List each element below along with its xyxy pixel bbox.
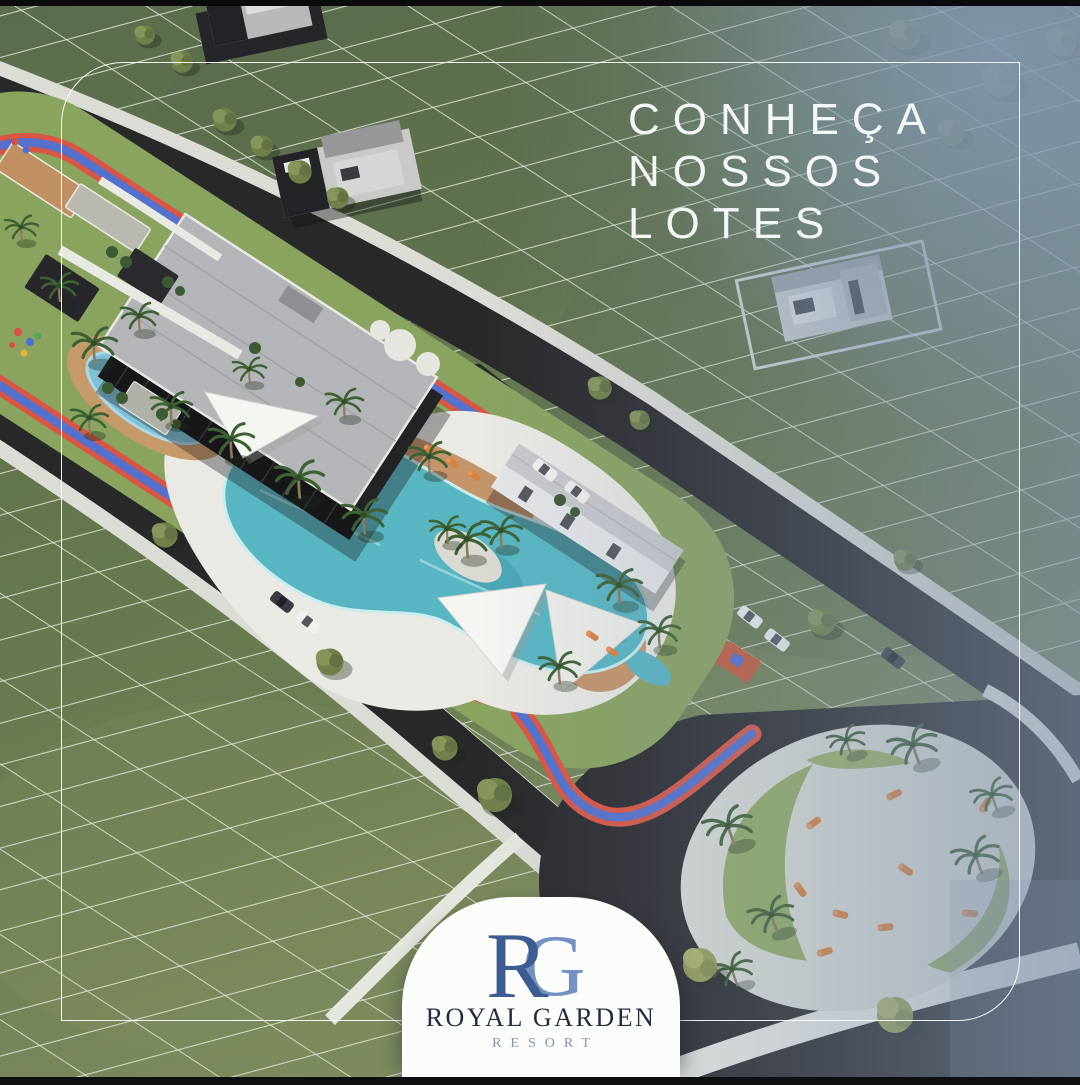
logo-subtitle: RESORT — [402, 1036, 680, 1052]
headline-line-1: CONHEÇA — [628, 94, 939, 146]
top-black-bar — [0, 0, 1080, 6]
monogram-letter-r: R — [486, 919, 549, 1013]
headline-line-2: NOSSOS — [628, 146, 939, 198]
logo-name: ROYAL GARDEN — [402, 1003, 680, 1033]
headline-line-3: LOTES — [628, 198, 939, 250]
rg-monogram: G R — [402, 897, 680, 1009]
headline: CONHEÇA NOSSOS LOTES — [628, 94, 939, 250]
bottom-black-bar — [0, 1077, 1080, 1085]
logo-card: G R ROYAL GARDEN RESORT — [402, 897, 680, 1077]
promo-image: CONHEÇA NOSSOS LOTES G R ROYAL GARDEN RE… — [0, 0, 1080, 1085]
haze-top-right — [600, 0, 1080, 520]
